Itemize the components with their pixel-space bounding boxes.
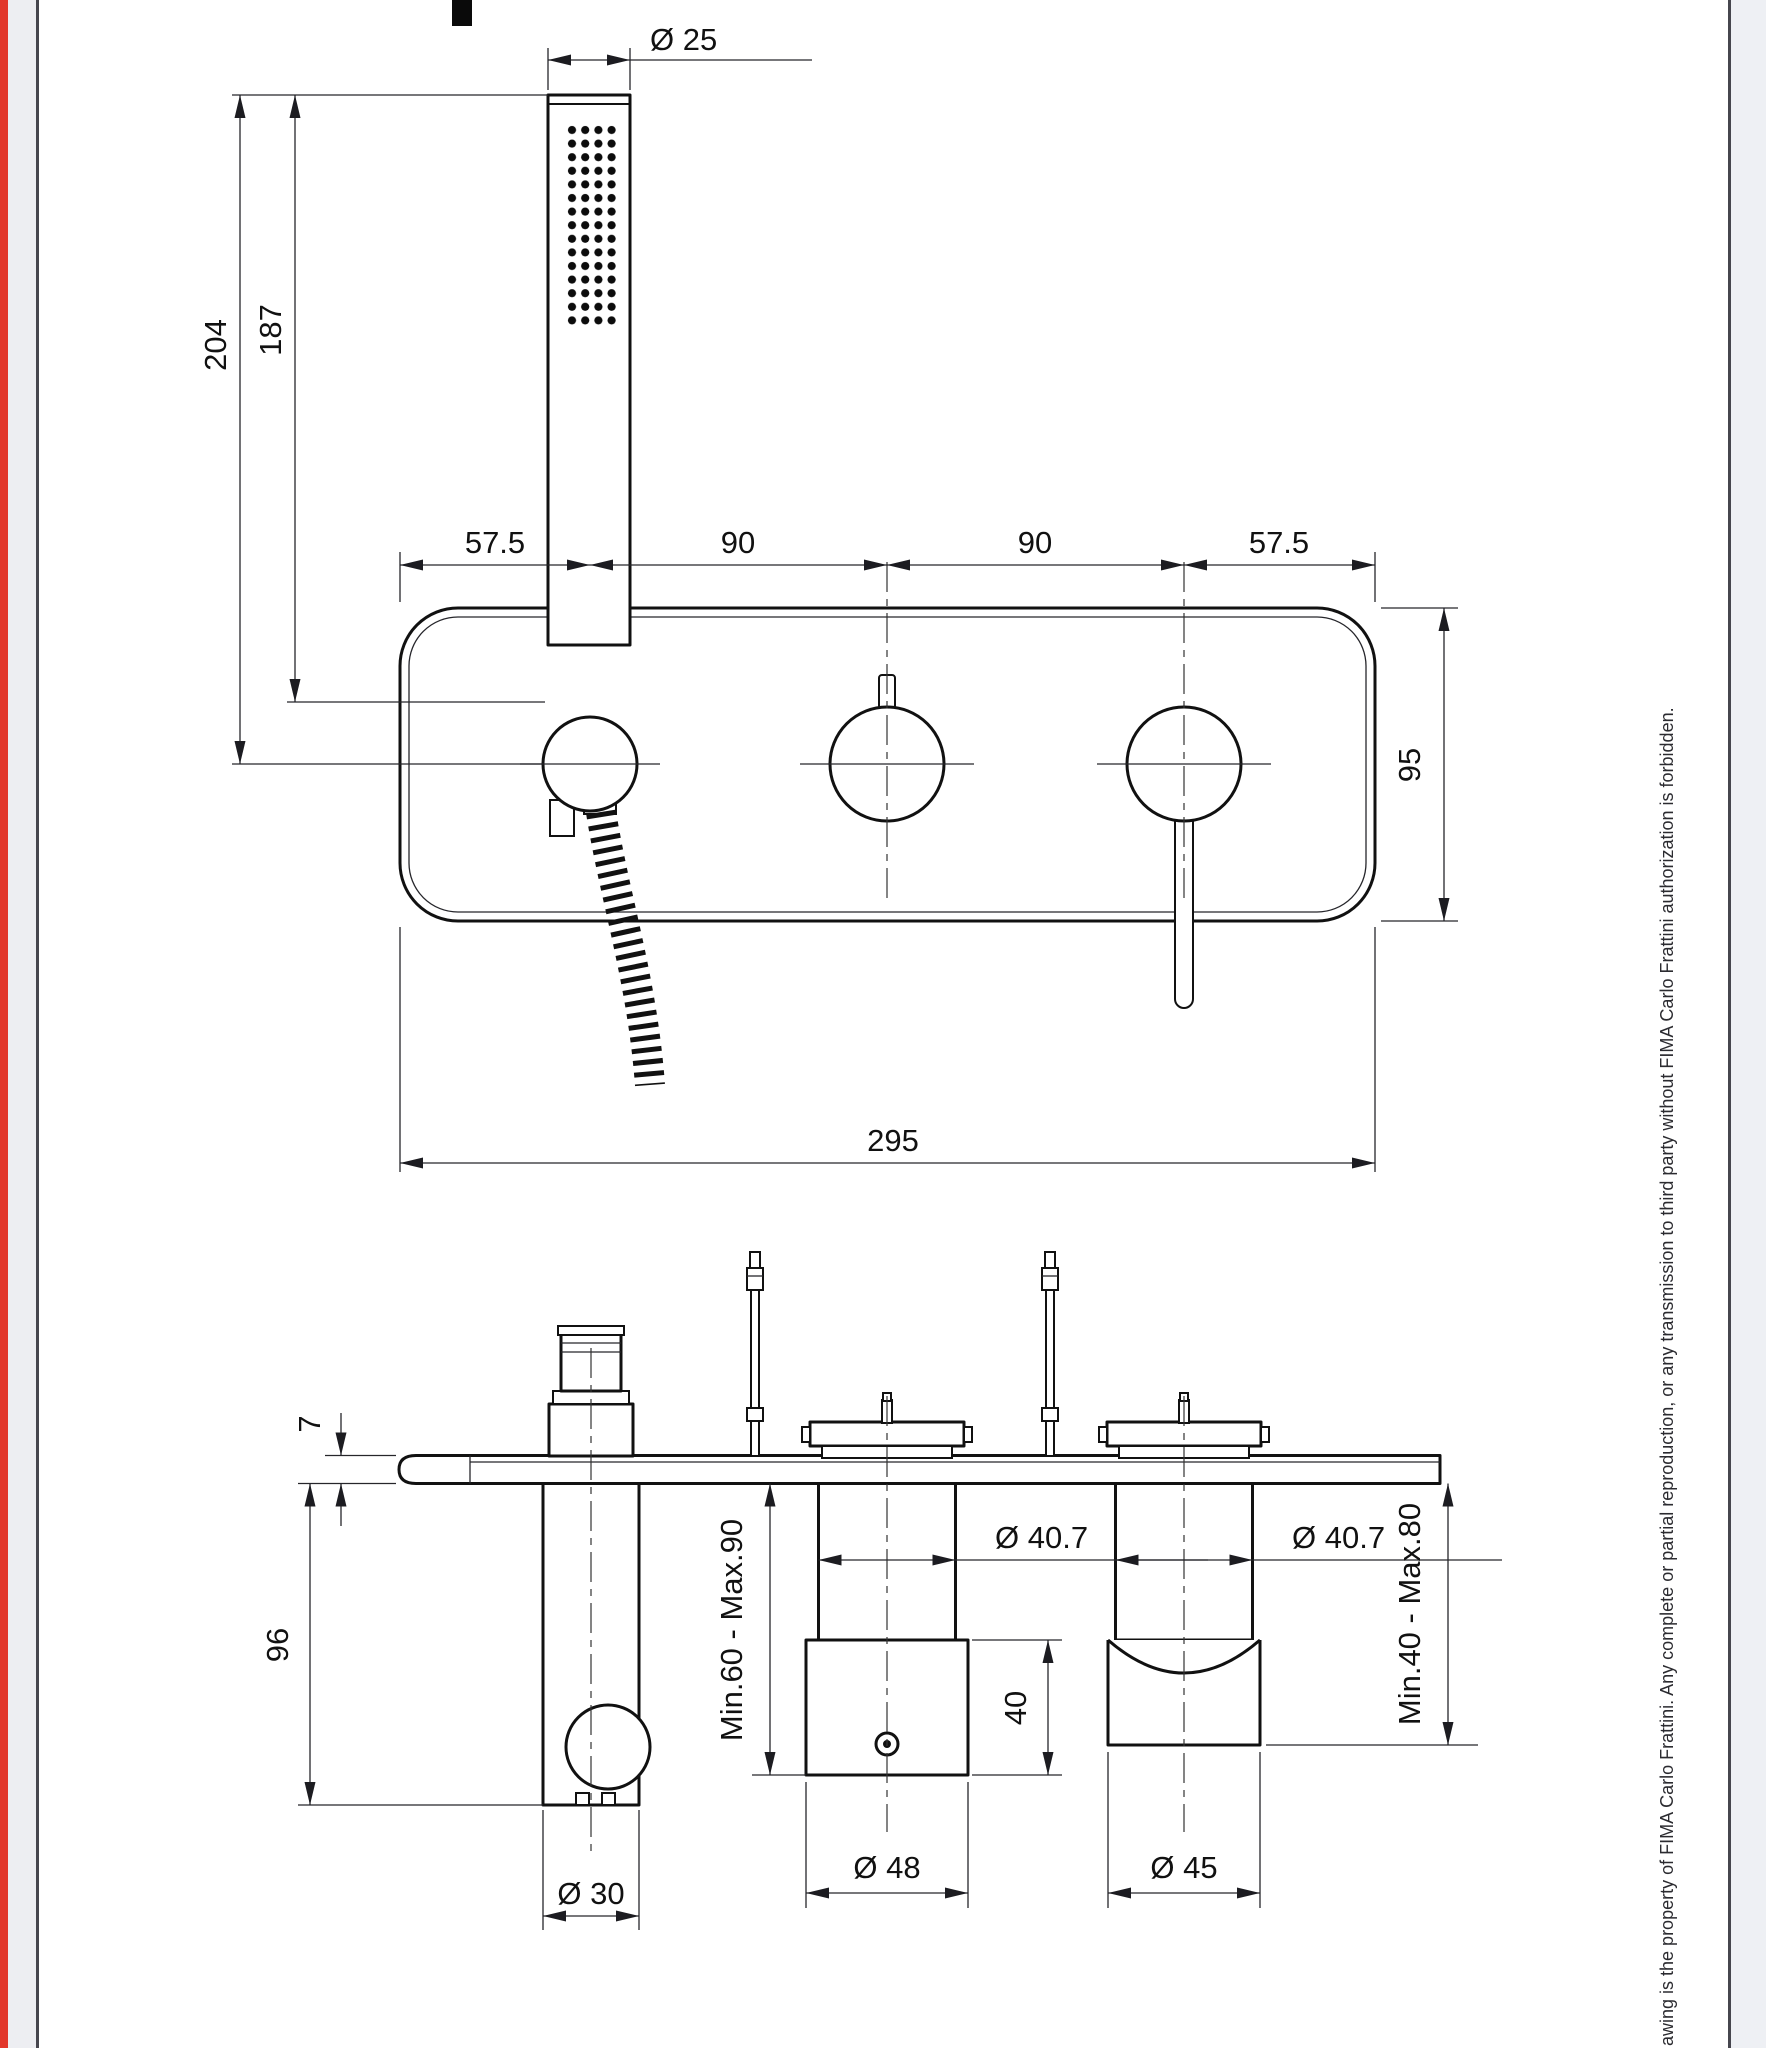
dim-label-90-right: 90	[1018, 525, 1052, 560]
wall-plate-section	[399, 1456, 1440, 1484]
dim-label-57-5-left: 57.5	[465, 525, 525, 560]
spray-face	[566, 124, 618, 328]
dim-label-min60-max90: Min.60 - Max.90	[714, 1519, 749, 1741]
technical-drawing: Ø 25 204 187 57.5 90	[0, 0, 1766, 2048]
top-view: Ø 25 204 187 57.5 90	[198, 22, 1458, 1172]
dim-label-dia407-mid: Ø 40.7	[995, 1520, 1088, 1555]
dim-dia25: Ø 25	[548, 22, 812, 90]
dim-40: 40	[972, 1640, 1062, 1775]
dim-label-dia45: Ø 45	[1150, 1850, 1217, 1885]
dim-min60-max90: Min.60 - Max.90	[714, 1484, 806, 1776]
dim-label-40: 40	[998, 1691, 1033, 1725]
holder-tube-section	[543, 1481, 650, 1805]
dim-dia48: Ø 48	[806, 1782, 968, 1908]
dim-7: 7	[292, 1413, 396, 1526]
dim-label-dia407-right: Ø 40.7	[1292, 1520, 1385, 1555]
dim-label-dia25: Ø 25	[650, 22, 717, 57]
centerlines-side-view	[591, 1348, 1184, 1852]
side-view: 7 96 Ø 30 Min.60 - Max.90	[260, 1252, 1502, 1930]
mounting-rod-left	[747, 1252, 763, 1456]
mounting-rod-right	[1042, 1252, 1058, 1456]
dim-label-dia48: Ø 48	[853, 1850, 920, 1885]
dim-label-7: 7	[292, 1415, 327, 1432]
dim-95: 95	[1381, 608, 1458, 921]
dim-label-90-left: 90	[721, 525, 755, 560]
dim-295: 295	[400, 927, 1375, 1172]
dim-label-95: 95	[1392, 748, 1427, 782]
handshower-wand	[548, 95, 630, 645]
dim-96: 96	[260, 1484, 543, 1806]
dim-label-295: 295	[867, 1123, 919, 1158]
copyright-text: awing is the property of FIMA Carlo Frat…	[1657, 707, 1677, 2046]
dim-label-96: 96	[260, 1628, 295, 1662]
dim-label-187: 187	[253, 304, 288, 356]
dim-label-57-5-right: 57.5	[1249, 525, 1309, 560]
dim-label-min40-max80: Min.40 - Max.80	[1392, 1503, 1427, 1725]
dim-label-dia30: Ø 30	[557, 1876, 624, 1911]
drawing-sheet: Ø 25 204 187 57.5 90	[0, 0, 1766, 2048]
dim-label-204: 204	[198, 319, 233, 371]
